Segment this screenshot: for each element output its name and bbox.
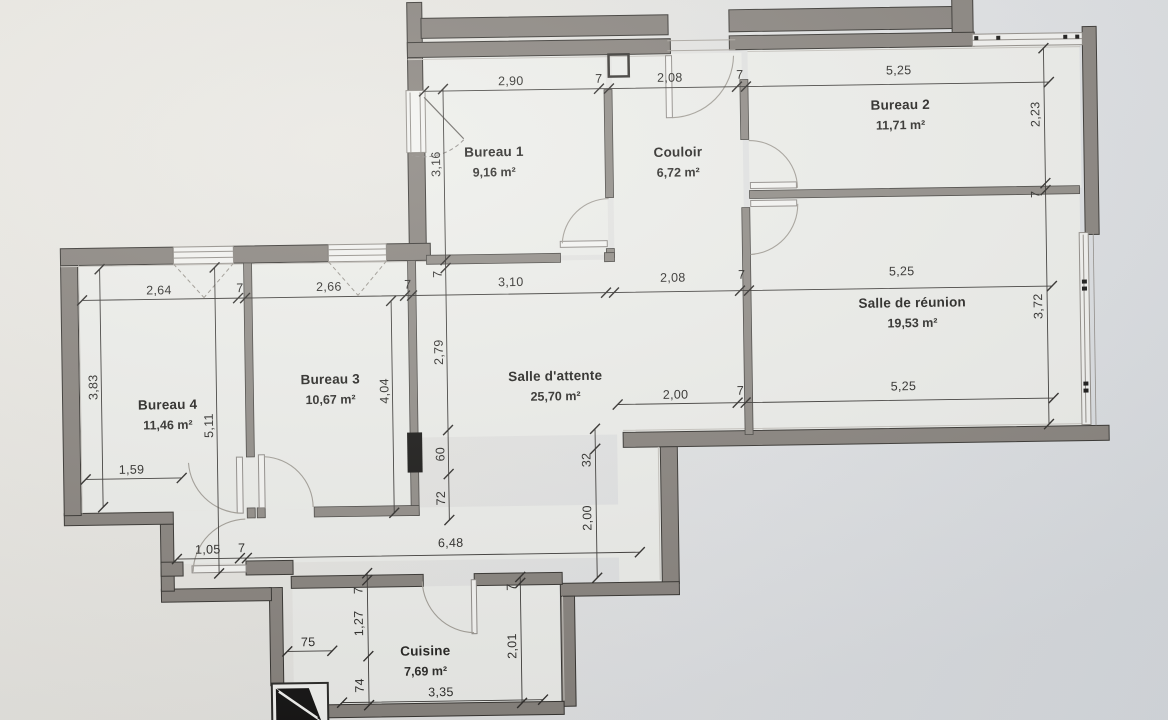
dimension-label: 7 bbox=[738, 268, 745, 282]
dimension-label: 2,08 bbox=[660, 270, 686, 284]
dimension-label: 7 bbox=[736, 68, 743, 82]
dimension-label: 6,48 bbox=[438, 536, 464, 550]
dimension-label: 1,05 bbox=[195, 542, 221, 556]
dimension-label: 7 bbox=[238, 541, 245, 555]
shaft bbox=[272, 683, 329, 720]
dimension-label: 2,01 bbox=[505, 633, 519, 659]
dimension-label: 7 bbox=[1029, 191, 1043, 198]
dimension-label: 5,25 bbox=[889, 264, 915, 278]
dimension-label: 1,27 bbox=[352, 611, 366, 637]
dimension-label: 3,16 bbox=[429, 151, 443, 177]
room-label: Bureau 3 bbox=[300, 371, 360, 387]
room-label: Bureau 4 bbox=[138, 397, 198, 413]
dimension-label: 2,64 bbox=[146, 283, 172, 297]
dimension-label: 2,66 bbox=[316, 280, 342, 294]
dimension-label: 5,25 bbox=[886, 63, 912, 77]
window-bureau4 bbox=[173, 246, 233, 264]
room-area-label: 25,70 m² bbox=[530, 389, 580, 404]
window-bureau3 bbox=[328, 244, 386, 262]
room-area-label: 11,46 m² bbox=[143, 418, 193, 433]
dimension-label: 7 bbox=[351, 587, 365, 594]
radiator bbox=[407, 432, 423, 472]
dimension-label: 2,79 bbox=[432, 339, 446, 365]
dimension-label: 72 bbox=[434, 491, 448, 506]
dimension-label: 7 bbox=[236, 281, 243, 295]
dimension-label: 5,25 bbox=[891, 379, 917, 393]
dimension-label: 2,08 bbox=[657, 71, 683, 85]
dimension-label: 7 bbox=[595, 72, 602, 86]
dimension-label: 2,90 bbox=[498, 74, 524, 88]
dimension-label: 7 bbox=[431, 270, 445, 277]
room-label: Bureau 2 bbox=[870, 97, 930, 113]
dimension-label: 3,83 bbox=[86, 374, 100, 400]
dimension-label: 75 bbox=[301, 635, 316, 649]
room-area-label: 10,67 m² bbox=[305, 392, 355, 407]
floor-plan: 2,9072,0875,252,6472,6673,102,0875,252,0… bbox=[0, 0, 1168, 720]
room-label: Salle de réunion bbox=[858, 294, 966, 311]
dimension-label: 2,23 bbox=[1028, 101, 1042, 127]
room-area-label: 11,71 m² bbox=[876, 118, 926, 133]
dimension-label: 3,72 bbox=[1031, 293, 1045, 319]
room-area-label: 9,16 m² bbox=[473, 165, 516, 180]
dimension-label: 3,10 bbox=[498, 275, 524, 289]
dimension-label: 5,11 bbox=[202, 413, 216, 438]
room-label: Bureau 1 bbox=[464, 144, 524, 160]
dimension-label: 3,35 bbox=[428, 685, 454, 699]
dimension-label: 4,04 bbox=[377, 378, 391, 404]
dimension-label: 7 bbox=[404, 278, 411, 292]
room-area-label: 6,72 m² bbox=[657, 165, 700, 180]
dimension-label: 7 bbox=[737, 384, 744, 398]
dimension-label: 74 bbox=[353, 678, 367, 693]
dimension-label: 2,00 bbox=[663, 387, 689, 401]
dimension-label: 7 bbox=[504, 583, 518, 590]
window-bureau1 bbox=[406, 90, 426, 152]
room-area-label: 7,69 m² bbox=[404, 664, 447, 679]
room-area-label: 19,53 m² bbox=[887, 316, 937, 331]
dimension-label: 32 bbox=[579, 453, 593, 468]
room-label: Salle d'attente bbox=[508, 368, 602, 384]
photo-background: 2,9072,0875,252,6472,6673,102,0875,252,0… bbox=[0, 0, 1168, 720]
dimension-label: 2,00 bbox=[580, 505, 594, 531]
dimension-label: 60 bbox=[433, 447, 447, 462]
room-label: Cuisine bbox=[400, 643, 451, 659]
room-label: Couloir bbox=[653, 144, 702, 160]
dimension-label: 1,59 bbox=[119, 463, 145, 477]
